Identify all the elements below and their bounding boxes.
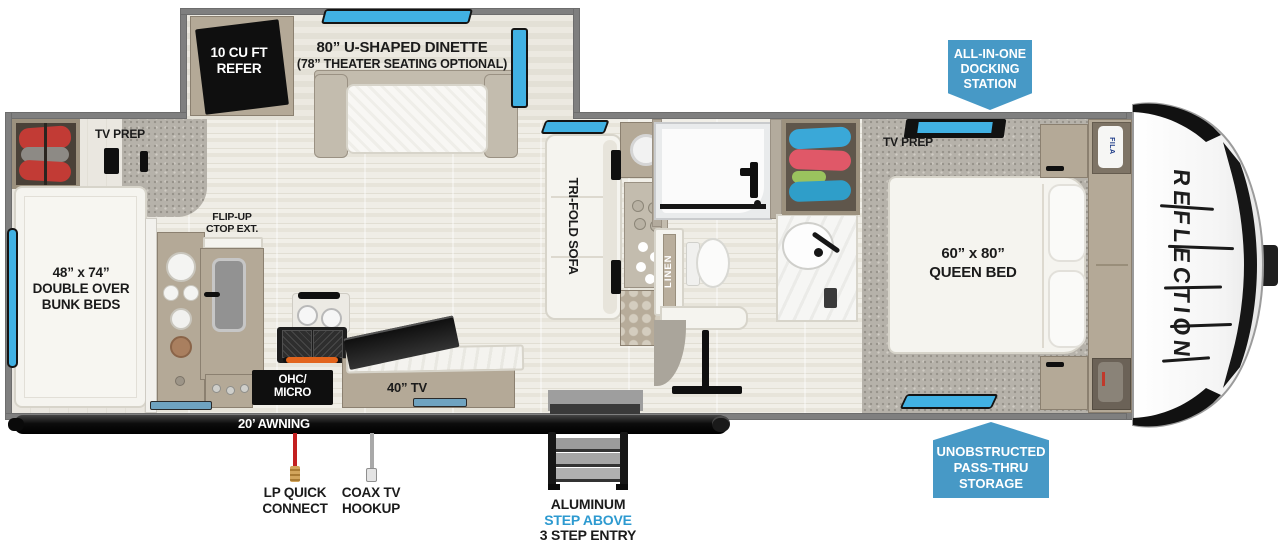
bath-soap-icon: [824, 288, 837, 308]
stove-grate-left: [282, 330, 312, 358]
slideout-top-window: [321, 9, 473, 24]
entry-table-post: [702, 330, 709, 388]
bunk-tv-mount-arm-icon: [140, 151, 148, 172]
bath-wall-right: [770, 119, 782, 219]
cap-body: [1133, 103, 1263, 426]
toilet-bowl: [696, 238, 730, 288]
pantry-bowl-white: [170, 308, 192, 330]
dinette-label-line2: (78” THEATER SEATING OPTIONAL): [272, 58, 532, 72]
dinette-bench-left: [314, 74, 348, 158]
coax-connector-icon: [366, 468, 377, 482]
bed-pillow-top: [1048, 184, 1086, 262]
wardrobe-shirt-bottom-tag: [1102, 372, 1105, 386]
living-top-window: [540, 120, 609, 134]
refer-label-line1: 10 CU FT: [197, 46, 281, 61]
ohc-label-line1: OHC/: [252, 374, 333, 387]
ohc-label-line2: MICRO: [252, 387, 333, 400]
sofa-label: TRI-FOLD SOFA: [566, 156, 580, 296]
steps-rail-right: [620, 432, 628, 486]
bunk-label-line1: 48” x 74”: [21, 266, 141, 281]
kitchen-knob3: [240, 384, 249, 393]
wall-top-left: [5, 112, 187, 119]
floorplan-canvas: 10 CU FT REFER 80” U-SHAPED DINETTE (78”…: [0, 0, 1280, 544]
slideout-wall-right: [573, 8, 580, 118]
coax-line: [370, 433, 374, 470]
coax-label-line2: HOOKUP: [321, 502, 421, 517]
reflection-logo: REFLECTION: [1169, 168, 1195, 363]
pantry-knob: [175, 376, 185, 386]
wardrobe-shirt-tag: FILA: [1107, 130, 1115, 162]
bottom-window-kitchen: [413, 398, 467, 407]
passthru-badge-line2: PASS-THRU: [933, 460, 1049, 476]
kitchen-faucet-icon: [204, 292, 220, 297]
step-3: [556, 468, 620, 482]
entry-door-slit: [550, 404, 640, 414]
bath-faucet-base-icon: [814, 248, 823, 257]
docking-badge-line2: DOCKING: [948, 62, 1032, 77]
lp-line: [293, 433, 297, 468]
nightstand-top-handle: [1046, 166, 1064, 171]
bunk-closet: [12, 119, 80, 189]
awning-label: 20’ AWNING: [238, 417, 338, 431]
bedroom-closet: [782, 119, 860, 215]
bed-pillow-bottom: [1048, 270, 1086, 348]
closet-clothes-red: [789, 149, 852, 171]
pots-handle-bar: [298, 292, 340, 299]
steps-foot-left: [548, 484, 560, 490]
rear-wall-window: [7, 228, 18, 368]
bunk-closet-strap: [44, 123, 47, 185]
entry-steps: [548, 432, 628, 490]
pot1: [297, 305, 318, 326]
shower-door-handle-icon: [754, 200, 761, 207]
pot2: [321, 308, 342, 329]
bed-label-line2: QUEEN BED: [913, 265, 1033, 282]
wall-top-right: [573, 112, 1133, 119]
nightstand-bottom-handle: [1046, 362, 1064, 367]
coax-label-line1: COAX TV: [321, 486, 421, 501]
hutch-cup3: [634, 218, 646, 230]
slideout-wall-left: [180, 8, 187, 118]
dinette-label-line1: 80” U-SHAPED DINETTE: [282, 40, 522, 57]
entry-label-line1: ALUMINUM: [538, 497, 638, 512]
bunk-tv-prep-label: TV PREP: [88, 128, 152, 141]
hutch-dot1: [638, 242, 648, 252]
closet-clothes-blue1: [789, 126, 852, 149]
pantry-plate-large: [166, 252, 196, 282]
steps-rail-left: [548, 432, 556, 486]
pantry-bowl-brown: [170, 336, 192, 358]
step-1: [556, 438, 620, 452]
docking-station-badge: ALL-IN-ONE DOCKING STATION: [948, 40, 1032, 110]
lp-connector-icon: [290, 466, 300, 482]
shower: [654, 122, 772, 220]
tv-40-label: 40” TV: [372, 381, 442, 395]
entry-table-foot: [672, 386, 742, 394]
bedroom-bottom-window: [900, 394, 999, 409]
bed-seam: [1042, 184, 1044, 348]
bunk-label-line3: BUNK BEDS: [21, 298, 141, 313]
docking-badge-line3: STATION: [948, 77, 1032, 92]
bunk-label-line2: DOUBLE OVER: [21, 282, 141, 297]
passthru-storage-badge: UNOBSTRUCTED PASS-THRU STORAGE: [933, 422, 1049, 498]
step-2: [556, 453, 620, 467]
hutch-speaker-bottom: [611, 260, 621, 294]
flip-up-label-line1: FLIP-UP: [200, 212, 264, 224]
refer-label-line2: REFER: [197, 62, 281, 77]
hutch-cup1: [632, 200, 644, 212]
shower-door: [660, 204, 766, 209]
docking-badge-line1: ALL-IN-ONE: [948, 47, 1032, 62]
bunk-tv-mount-icon: [104, 148, 119, 174]
entry-label-line3: 3 STEP ENTRY: [538, 528, 638, 543]
closet-clothes-blue2: [789, 180, 852, 202]
bunk-partition-wall: [145, 218, 157, 413]
flip-up-label-line2: CTOP EXT.: [200, 224, 264, 236]
bedroom-tv-screen: [917, 122, 993, 133]
front-cap: REFLECTION: [1120, 50, 1280, 494]
awning-end-right: [712, 416, 730, 432]
slideout-side-window: [511, 28, 528, 108]
kitchen-knob1: [212, 384, 221, 393]
hutch-speaker-top: [611, 150, 621, 180]
shower-head-icon: [740, 168, 754, 176]
awning-end-left: [8, 418, 24, 431]
linen-label: LINEN: [664, 241, 674, 301]
bottom-window-bunk: [150, 401, 212, 410]
passthru-badge-line1: UNOBSTRUCTED: [933, 444, 1049, 460]
pantry-plate-small1: [163, 285, 179, 301]
bed-label-line1: 60” x 80”: [913, 246, 1033, 263]
stove-grate-right: [313, 330, 343, 358]
pantry-plate-small2: [183, 285, 199, 301]
passthru-badge-line3: STORAGE: [933, 476, 1049, 492]
kitchen-knob2: [226, 386, 235, 395]
steps-foot-right: [616, 484, 628, 490]
hutch-dot3: [636, 262, 646, 272]
dinette-table: [346, 84, 488, 154]
stove-handle: [286, 357, 338, 363]
